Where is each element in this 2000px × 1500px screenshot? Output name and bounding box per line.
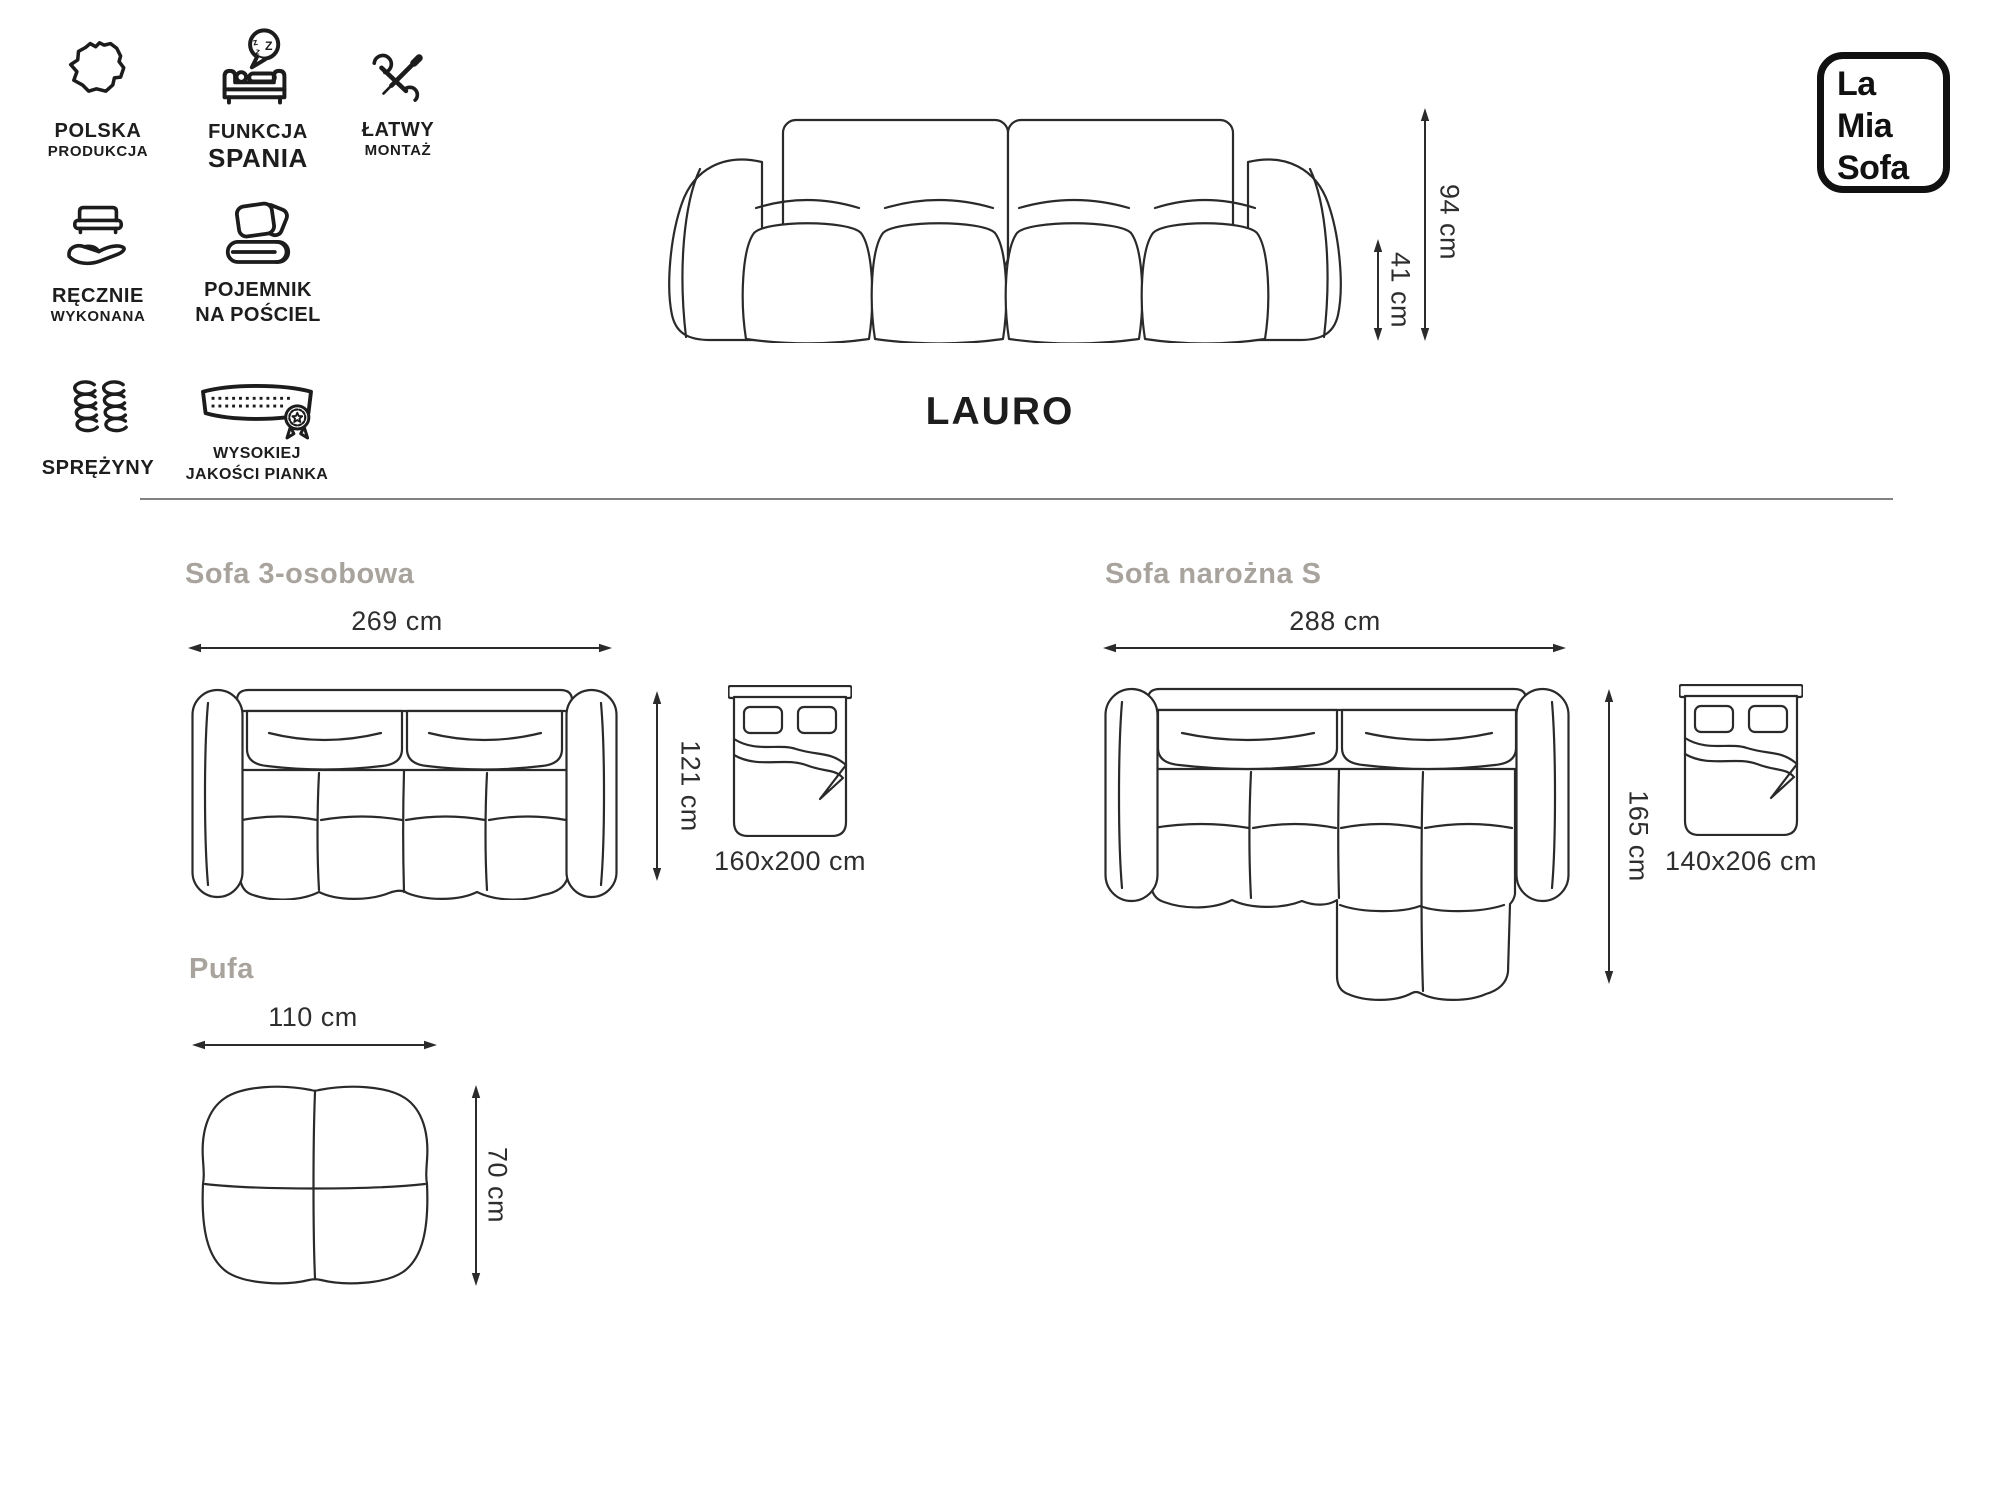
width-dim-label: 288 cm [1289,606,1381,637]
brand-logo-line: La [1837,63,1943,105]
variant-heading-sofa-narozna-s: Sofa narożna S [1105,558,1322,591]
sleeping-area-label: 140x206 cm [1665,846,1817,877]
width-dim-label: 110 cm [268,1002,358,1033]
badge-sublabel: WYKONANA [51,308,146,327]
depth-dim-label: 121 cm [675,740,706,832]
badge-sublabel: PRODUKCJA [48,143,148,162]
width-dim-arrow [191,1038,438,1052]
handmade-sofa-hand-icon [56,198,140,278]
badge-sublabel: MONTAŻ [365,142,432,161]
badge-label: POJEMNIK [204,278,312,303]
sofa-3-osobowa-top-view-drawing [191,687,618,900]
depth-dim-arrow [1602,688,1616,985]
depth-dim-arrow [650,690,664,882]
sleeping-area-bed-icon [728,685,852,837]
poland-map-icon [57,33,139,113]
tools-icon [365,48,431,112]
seat-height-label: 41 cm [1385,252,1416,328]
badge-funkcja-spania: z Z z FUNKCJA SPANIA [178,30,338,173]
badge-label: SPRĘŻYNY [42,456,155,480]
section-divider [140,498,1893,500]
badge-recznie-wykonana: RĘCZNIE WYKONANA [20,198,176,327]
badge-latwy-montaz: ŁATWY MONTAŻ [336,48,460,161]
width-dim-label: 269 cm [351,606,443,637]
badge-label: RĘCZNIE [52,284,144,308]
sofa-front-view-drawing [664,117,1346,343]
badge-label: ŁATWY [362,118,435,142]
sleeping-area-bed-icon [1679,684,1803,836]
variant-heading-pufa: Pufa [189,953,254,986]
badge-wysokiej-jakosci-pianka: WYSOKIEJ JAKOŚCI PIANKA [162,380,352,486]
badge-sprezyny: SPRĘŻYNY [20,376,176,480]
sofa-narozna-top-view-drawing [1104,686,1570,1002]
springs-icon [59,376,137,450]
brand-logo-line: Sofa [1837,147,1943,189]
sleeping-area-label: 160x200 cm [714,846,866,877]
seat-height-dim-arrow [1371,238,1385,342]
product-title: LAURO [850,390,1150,434]
product-dimension-sheet: POLSKA PRODUKCJA z Z z FUNKCJA SPANIA [0,0,2000,1500]
variant-heading-sofa-3-osobowa: Sofa 3-osobowa [185,558,414,591]
badge-polska-produkcja: POLSKA PRODUKCJA [20,33,176,162]
badge-label: POLSKA [55,119,142,143]
width-dim-arrow [187,641,613,655]
depth-dim-label: 70 cm [482,1147,513,1223]
bedding-storage-icon [215,196,301,278]
pufa-top-view-drawing [187,1082,442,1290]
sleep-function-icon: z Z z [214,30,302,114]
height-dim-arrow [1418,107,1432,342]
badge-sublabel: NA POŚCIEL [195,303,321,328]
zzz-text: Z [265,39,273,53]
badge-label: FUNKCJA [208,120,308,144]
badge-sublabel: SPANIA [208,144,308,173]
foam-quality-icon [197,380,317,444]
depth-dim-label: 165 cm [1623,790,1654,882]
sofa-height-label: 94 cm [1434,184,1465,260]
width-dim-arrow [1102,641,1567,655]
badge-pojemnik-na-posciel: POJEMNIK NA POŚCIEL [172,196,344,328]
brand-logo-line: Mia [1837,105,1943,147]
zzz-text: z [255,46,262,57]
badge-label: WYSOKIEJ [213,444,301,465]
brand-logo: La Mia Sofa [1817,52,1950,193]
badge-sublabel: JAKOŚCI PIANKA [186,465,329,486]
